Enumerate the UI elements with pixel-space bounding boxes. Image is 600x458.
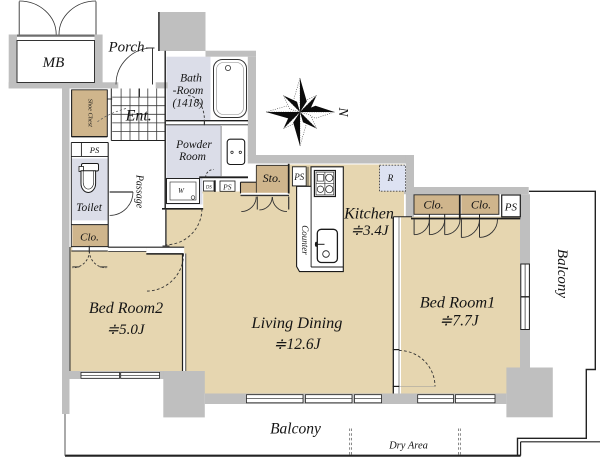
svg-text:Bath: Bath xyxy=(180,73,202,85)
svg-text:DS: DS xyxy=(205,185,212,190)
svg-text:Powder: Powder xyxy=(175,139,212,151)
svg-text:(1418): (1418) xyxy=(172,97,203,109)
svg-text:PS: PS xyxy=(89,145,100,155)
svg-text:Dry Area: Dry Area xyxy=(388,440,428,451)
svg-text:Room: Room xyxy=(178,151,206,163)
svg-text:MB: MB xyxy=(42,55,65,71)
svg-text:Balcony: Balcony xyxy=(270,421,321,438)
svg-text:Shoe Chest: Shoe Chest xyxy=(87,99,94,127)
svg-text:Kitchen: Kitchen xyxy=(343,206,394,223)
svg-text:R: R xyxy=(386,174,393,184)
svg-text:≑5.0J: ≑5.0J xyxy=(107,322,146,338)
svg-text:Passage: Passage xyxy=(134,174,145,209)
svg-text:PS: PS xyxy=(504,201,518,213)
svg-text:Bed Room2: Bed Room2 xyxy=(89,300,163,317)
svg-text:Bed Room1: Bed Room1 xyxy=(420,293,496,312)
svg-text:Counter: Counter xyxy=(300,225,310,255)
svg-text:Balcony: Balcony xyxy=(554,249,570,298)
svg-text:-Room: -Room xyxy=(173,85,204,97)
svg-text:PS: PS xyxy=(222,183,232,192)
svg-text:Clo.: Clo. xyxy=(80,232,99,244)
svg-text:≑7.7J: ≑7.7J xyxy=(439,313,479,330)
svg-text:Living Dining: Living Dining xyxy=(251,313,343,332)
svg-text:Clo.: Clo. xyxy=(471,198,491,212)
svg-text:N: N xyxy=(336,107,351,118)
svg-text:Clo.: Clo. xyxy=(423,198,443,212)
svg-text:Porch: Porch xyxy=(107,40,144,56)
svg-text:PS: PS xyxy=(293,172,304,182)
svg-text:≑12.6J: ≑12.6J xyxy=(274,336,322,353)
svg-text:Ent.: Ent. xyxy=(125,108,152,125)
svg-text:Toilet: Toilet xyxy=(76,202,103,214)
svg-text:≑3.4J: ≑3.4J xyxy=(351,223,390,239)
svg-text:Sto.: Sto. xyxy=(263,171,281,185)
